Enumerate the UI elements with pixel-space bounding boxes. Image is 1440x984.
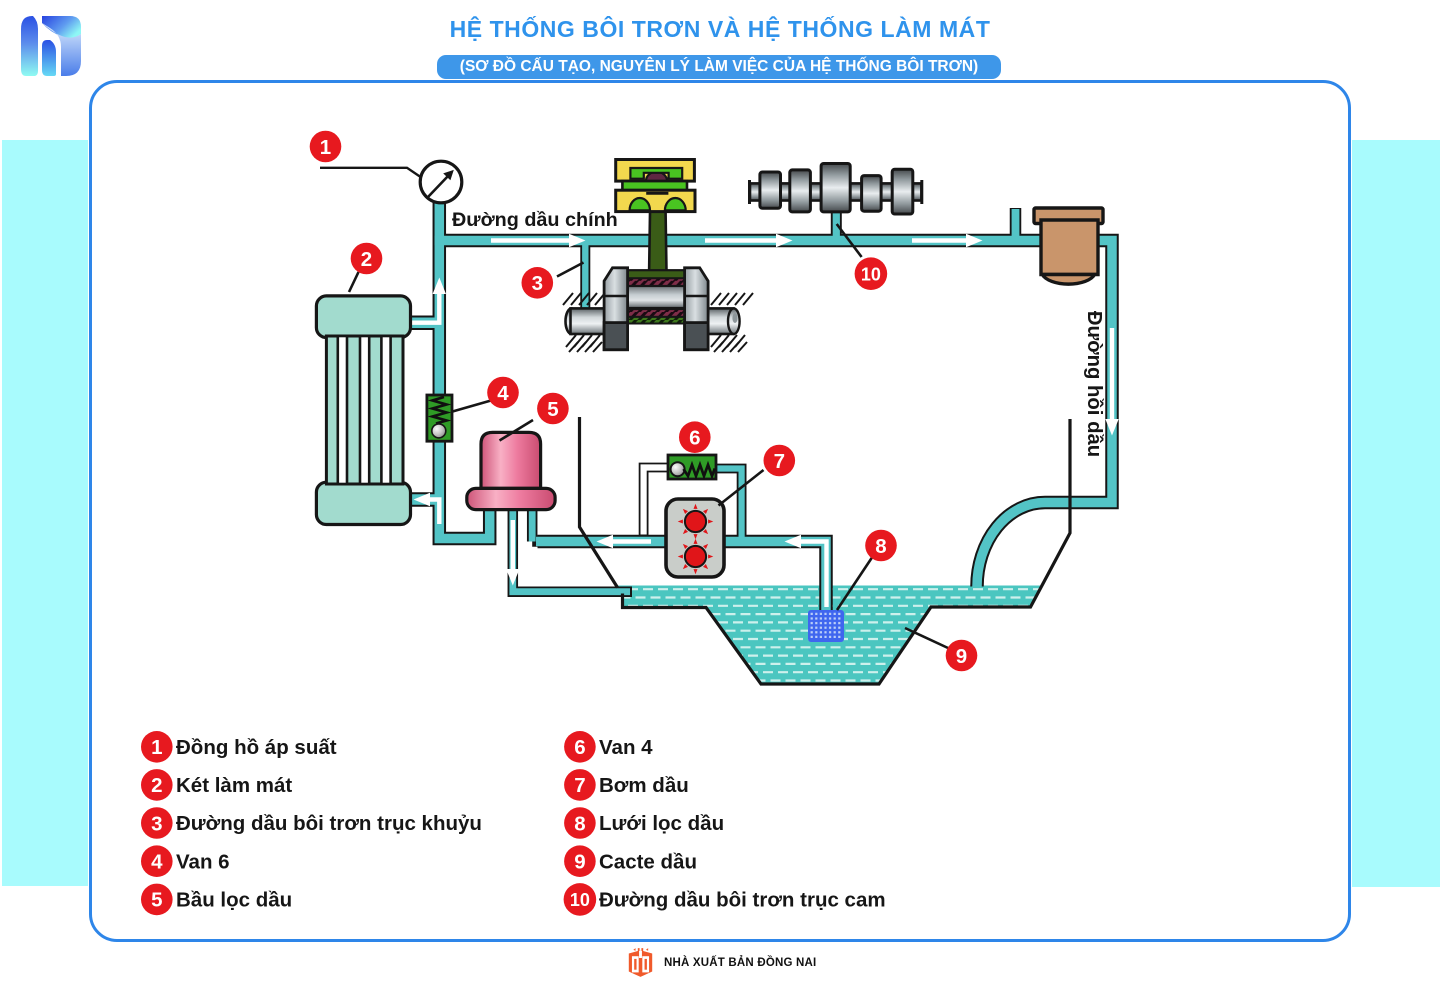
svg-text:7: 7 <box>574 774 585 797</box>
svg-text:Đường dầu bôi trơn trục cam: Đường dầu bôi trơn trục cam <box>599 889 886 912</box>
svg-text:Két làm mát: Két làm mát <box>176 774 292 797</box>
svg-text:4: 4 <box>151 851 163 874</box>
svg-text:Đồng hồ áp suất: Đồng hồ áp suất <box>176 736 337 759</box>
svg-text:1: 1 <box>320 136 331 159</box>
svg-text:3: 3 <box>151 812 162 835</box>
svg-text:8: 8 <box>574 812 585 835</box>
svg-text:9: 9 <box>956 645 967 668</box>
svg-text:6: 6 <box>574 736 585 759</box>
svg-text:Bầu lọc dầu: Bầu lọc dầu <box>176 889 292 912</box>
svg-text:8: 8 <box>875 535 886 558</box>
svg-text:5: 5 <box>547 398 558 421</box>
svg-text:10: 10 <box>570 890 590 910</box>
svg-text:4: 4 <box>497 382 509 405</box>
svg-text:Van 6: Van 6 <box>176 850 230 873</box>
svg-text:Bơm dầu: Bơm dầu <box>599 774 689 797</box>
svg-text:Lưới lọc dầu: Lưới lọc dầu <box>599 812 724 835</box>
svg-text:6: 6 <box>689 427 700 450</box>
svg-text:Cacte dầu: Cacte dầu <box>599 850 697 873</box>
svg-text:Van 4: Van 4 <box>599 736 653 759</box>
svg-text:7: 7 <box>774 450 785 473</box>
svg-text:Đường dầu chính: Đường dầu chính <box>452 209 618 231</box>
svg-text:10: 10 <box>861 264 881 284</box>
svg-text:Đường hồi dầu: Đường hồi dầu <box>1083 311 1105 457</box>
svg-text:Đường dầu bôi trơn trục khuỷu: Đường dầu bôi trơn trục khuỷu <box>176 812 482 835</box>
svg-text:2: 2 <box>361 248 372 271</box>
svg-text:2: 2 <box>151 774 162 797</box>
svg-text:1: 1 <box>151 736 162 759</box>
svg-text:9: 9 <box>574 851 585 874</box>
svg-text:3: 3 <box>532 272 543 295</box>
svg-text:5: 5 <box>151 889 162 912</box>
